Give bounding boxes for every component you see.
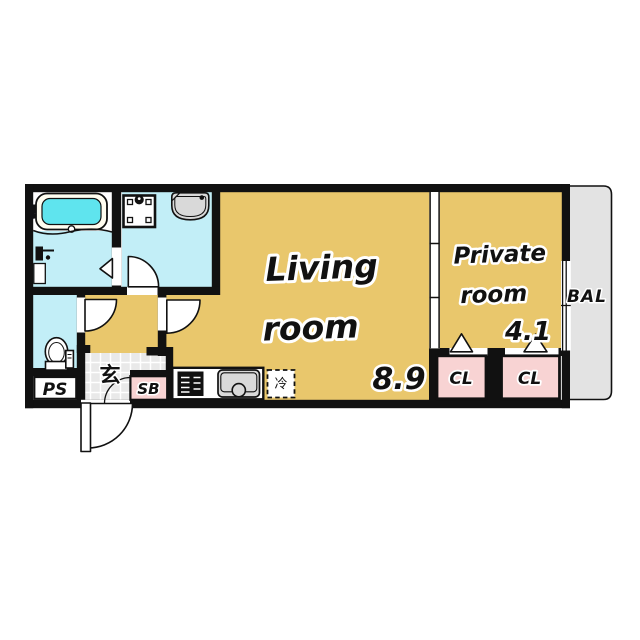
label-refrigerator: 冷 xyxy=(274,377,287,392)
floorplan-drawing: Living room 8.9 Private room 4.1 BAL CL … xyxy=(0,0,640,640)
label-shoe-box: SB xyxy=(137,380,159,398)
label-entrance: 玄 xyxy=(100,363,121,387)
label-closet-2: CL xyxy=(518,369,541,389)
label-living-2: room xyxy=(262,306,359,348)
bathtub xyxy=(30,194,108,233)
label-private-2: room xyxy=(460,281,528,309)
floorplan-canvas: Living room 8.9 Private room 4.1 BAL CL … xyxy=(0,0,640,640)
partition-sliding-door xyxy=(429,192,440,348)
stove xyxy=(178,372,204,397)
label-balcony: BAL xyxy=(567,287,607,307)
label-pipe-space: PS xyxy=(43,380,68,400)
wash-basin xyxy=(172,193,209,220)
washing-machine-pan xyxy=(124,195,156,227)
label-closet-1: CL xyxy=(449,369,472,389)
label-private-1: Private xyxy=(453,240,546,269)
label-private-area: 4.1 xyxy=(504,317,551,347)
label-living-1: Living xyxy=(265,246,379,289)
label-living-area: 8.9 xyxy=(372,362,425,397)
sink xyxy=(218,370,260,397)
